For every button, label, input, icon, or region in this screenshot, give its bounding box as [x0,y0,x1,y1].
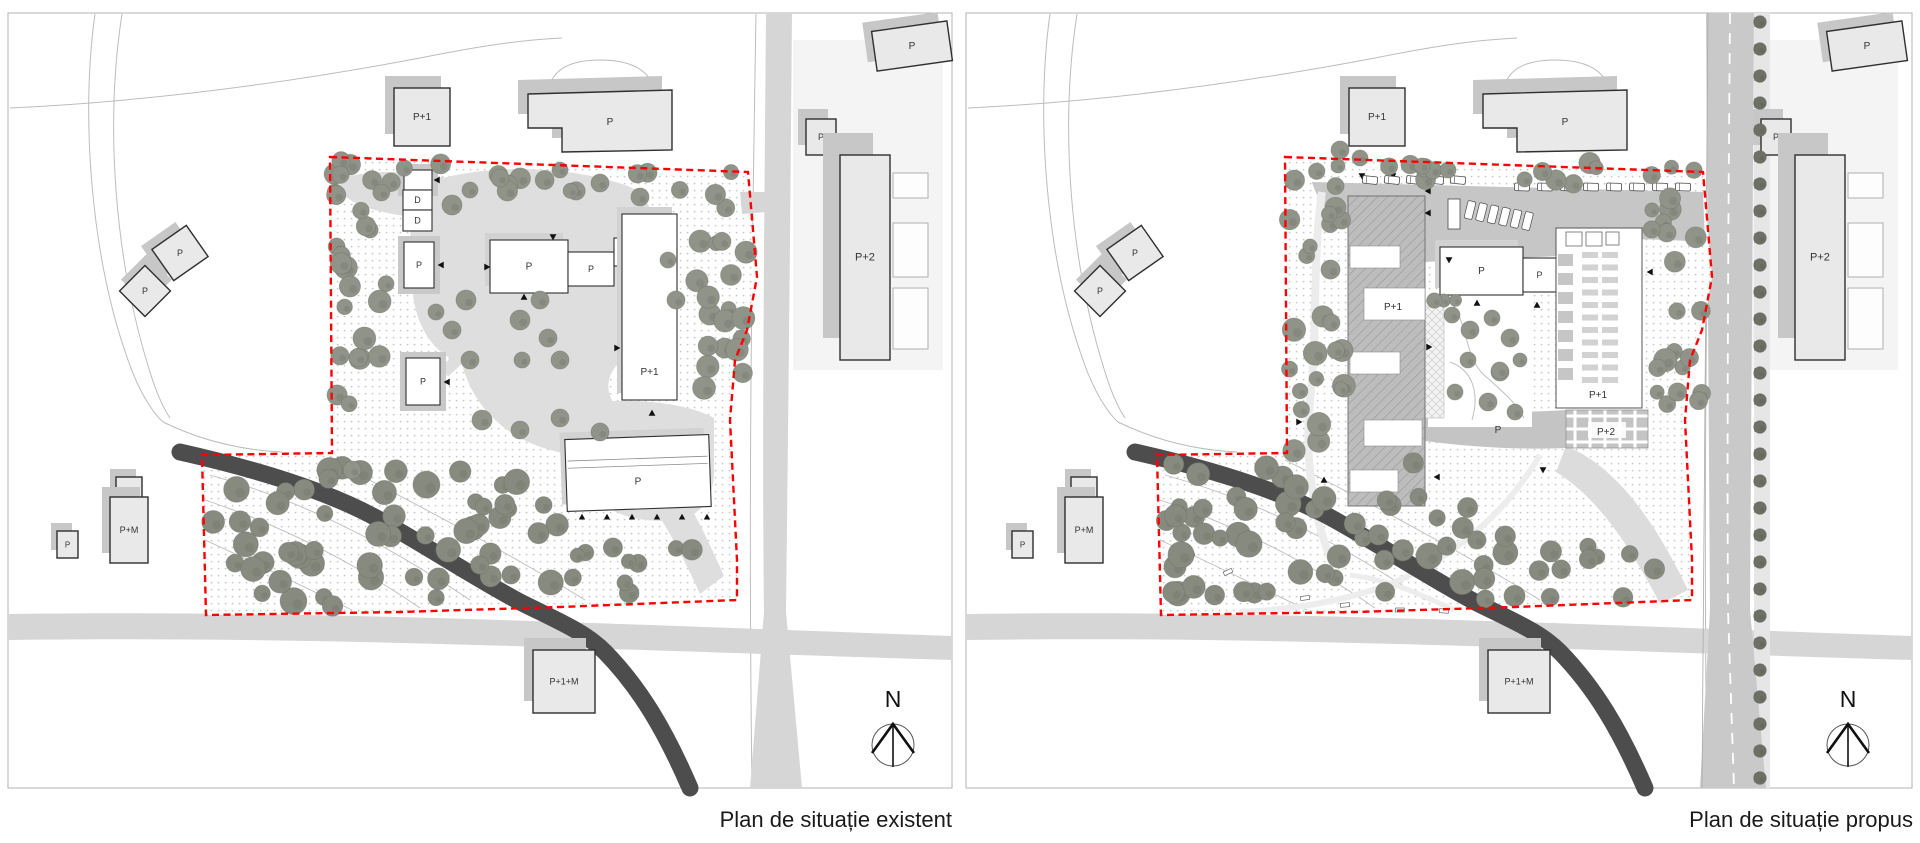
tree-shade [1695,236,1703,244]
tree [1165,505,1187,527]
deck-bar [1602,377,1618,383]
building-label: P [1495,425,1502,436]
tree-shade [1428,554,1438,564]
tree-shade [628,592,635,599]
tree [356,216,376,236]
tree-shade [1461,580,1471,590]
tree-shade [1651,209,1656,214]
tree-shade [1759,399,1764,404]
tree-shade [1402,549,1410,557]
tree-shade [324,512,330,518]
tree-shade [1386,499,1393,506]
tree-shade [1248,542,1258,552]
tree [564,569,581,586]
tree-shade [1542,170,1549,177]
tree-shade [1173,591,1181,599]
tree-shade [543,504,549,510]
tree [428,568,450,590]
tree [491,169,509,187]
tree [1501,329,1519,347]
core-box [1558,330,1573,342]
tree [504,469,530,495]
tree-shade [469,359,476,366]
tree-shade [1335,185,1341,191]
tree-shade [1759,534,1764,539]
tree [373,184,390,201]
core-box [1558,349,1573,361]
road-south [8,613,952,660]
tree [436,537,461,562]
tree-shade [544,179,551,186]
tree-shade [313,549,320,556]
tree [1476,590,1494,608]
tree-shade [451,329,458,336]
tree-shade [1175,514,1183,522]
building-label: P [1132,248,1138,258]
tree-shade [459,470,467,478]
building-label: P+1 [1384,302,1403,313]
tree-shade [1759,696,1764,701]
tree-shade [1330,268,1337,275]
tree [1458,497,1478,517]
building-label: P [65,541,70,550]
roof-box [1566,232,1582,246]
tree-shade [725,207,732,214]
tree-shade [1354,522,1362,530]
tree [241,557,266,582]
driveway-stub [740,192,766,214]
tree [1479,393,1497,411]
tree-shade [1413,462,1421,470]
context-building: P+2 [1778,133,1845,360]
tree-shade [1674,260,1682,268]
deck-bar [1602,315,1618,321]
tree-shade [572,576,578,582]
deck-bar [1602,265,1618,271]
tree [1331,159,1345,173]
site-building-group: P [398,236,440,294]
tree-shade [1549,596,1556,603]
tree-shade [1287,502,1297,512]
tree-shade [1378,534,1386,542]
bench [1300,595,1309,600]
deck-bar [1602,352,1618,358]
core-box [1558,368,1573,380]
deck-bar [1602,340,1618,346]
tree-shade [1504,535,1512,543]
tree [1429,510,1445,526]
courtyard-outline [893,173,928,198]
tree-shade [1384,559,1391,566]
tree-shade [519,319,527,327]
site-plan-canvas: P+1PPP+2PPPP+MPP+1+MDDPPPPP+1PP+1PPP+2PP… [0,0,1920,843]
tree-shade [252,567,261,576]
context-building: P [1817,12,1907,71]
tree-shade [1759,480,1764,485]
deck-bar [1582,315,1598,321]
tree [1163,581,1185,603]
tree [269,570,292,593]
tree-shade [745,251,753,259]
deck-bar [1582,290,1598,296]
tree [1645,203,1659,217]
tree [1659,188,1680,209]
tree-shade [1519,359,1524,364]
tree [1691,301,1710,320]
tree [294,479,315,500]
tree-shade [1759,615,1764,620]
tree [1288,560,1313,585]
tree [1284,475,1308,499]
tree-shade [1299,570,1308,579]
tree [511,421,529,439]
tree-shade [1759,642,1764,647]
roof-box [1606,232,1619,245]
tree [357,553,382,578]
caption-proposed: Plan de situație propus [1689,807,1913,832]
tree [1754,178,1767,191]
tree-shade [465,529,475,539]
parked-car [1362,175,1378,184]
tree [1258,583,1275,600]
tree [1168,542,1194,568]
tree-shade [383,491,392,500]
tree [472,410,492,430]
tree [1507,404,1523,420]
tree [1643,221,1660,238]
tree [1281,361,1297,377]
tree-shade [1759,723,1764,728]
tree-shade [510,574,517,581]
tree-shade [667,259,673,265]
tree-shade [369,564,379,574]
tree-shade [1293,328,1302,337]
tree [1321,206,1337,222]
tree-shade [1759,129,1764,134]
tree [384,460,407,483]
tree-shade [707,365,716,374]
tree [1754,43,1767,56]
tree-shade [639,196,646,203]
tree-shade [377,532,386,541]
tree [475,498,492,515]
tree [1579,550,1598,569]
tree [1309,163,1325,179]
tree [1689,392,1707,410]
building-label: P+2 [855,252,875,264]
building-label: P [420,377,426,387]
tree-shade [1759,156,1764,161]
tree [1276,513,1296,533]
tree [591,423,609,441]
site-building-group: P [485,233,568,293]
tree-shade [1434,300,1440,306]
tree-shade [1476,539,1483,546]
tree [1541,588,1559,606]
tree [1754,286,1767,299]
tree [1352,150,1368,166]
tree-shade [1759,372,1764,377]
building [1483,90,1627,152]
tree [531,291,549,309]
building-court [1350,352,1400,374]
tree [1754,664,1767,677]
tree [535,171,554,190]
tree-shade [1462,527,1470,535]
tree [266,492,289,515]
tree [279,542,299,562]
tree [1414,158,1430,174]
tree [1255,456,1279,480]
tree-shade [1266,466,1275,475]
tree [456,290,476,310]
tree-shade [1245,507,1254,516]
tree [319,469,338,488]
tree-shade [1331,322,1337,328]
tree-shade [1467,359,1473,365]
tree-shade [647,172,654,179]
tree-shade [1555,179,1563,187]
context-building: P [862,12,952,71]
tree [535,497,552,514]
tree [1234,497,1257,520]
tree-shade [451,204,459,212]
core-box [1558,273,1573,285]
tree-shade [1295,485,1304,494]
tree-shade [1487,401,1494,408]
tree-shade [1180,553,1190,563]
tree-shade [1550,550,1558,558]
tree-shade [311,562,321,572]
tree [349,348,368,367]
tree-shade [721,240,728,247]
tree-shade [245,543,255,553]
tree-shade [499,177,506,184]
tree-shade [1759,21,1764,26]
tree-shade [435,597,441,603]
tree-shade [378,355,386,363]
parked-truck [1448,199,1460,229]
tree [1564,175,1582,193]
tree-shade [1203,532,1211,540]
tree [697,286,719,308]
tree-shade [1314,352,1323,361]
site-building-group: P [1523,258,1556,292]
tree-shade [344,306,350,312]
tree [621,554,636,569]
building-label: P [1864,41,1871,52]
tree-shade [1469,329,1476,336]
parcel-line [114,14,170,418]
tree [353,202,370,219]
tree [551,351,569,369]
tree-shade [303,488,311,496]
tree-shade [1657,391,1662,396]
tree [1754,124,1767,137]
tree-shade [332,605,340,613]
tree [528,523,549,544]
tree [1513,353,1527,367]
tree-shade [1334,577,1340,583]
context-building: P+1+M [1479,638,1550,713]
tree-shade [628,560,634,566]
tree-shade [1759,345,1764,350]
building-label: P [1020,541,1025,550]
deck-bar [1582,265,1598,271]
tree [229,511,251,533]
tree-shade [277,502,286,511]
tree [705,184,725,204]
tree-shade [1667,403,1673,409]
deck-bar [1582,377,1598,383]
tree-shade [724,320,732,328]
tree-shade [1285,521,1292,528]
tree-shade [349,403,355,409]
tree [1754,448,1767,461]
tree-shade [1341,219,1348,226]
tree [591,174,609,192]
tree-shade [351,469,358,476]
tree [1754,313,1767,326]
tree-shade [504,503,512,511]
tree [1754,502,1767,515]
tree [502,566,520,584]
tree-shade [1447,169,1453,175]
tree [563,183,578,198]
tree-shade [1654,568,1662,576]
tree-shade [1388,165,1395,172]
deck-bar [1602,277,1618,283]
tree-shade [349,285,357,293]
context-building: P+2 [823,133,890,360]
tree [1754,97,1767,110]
tree-shade [585,551,591,557]
site-building-group: P+2 [1566,410,1648,448]
tree-shade [447,548,456,557]
tree [1754,340,1767,353]
tree-shade [556,523,565,532]
tree-shade [1538,569,1546,577]
tree-shade [489,552,497,560]
tree-shade [1425,178,1433,186]
building-label: P+1 [640,367,659,378]
tree [224,477,250,503]
tree-shade [1338,555,1347,564]
tree [1376,582,1395,601]
tree [603,538,622,557]
tree-shade [539,299,546,306]
parcel-line [10,38,562,108]
tree-shade [379,300,388,309]
tree-shade [1325,572,1332,579]
building-label: P [635,477,642,488]
tree [671,181,688,198]
deck-bar [1602,365,1618,371]
tree-shade [1491,317,1497,323]
building-label: P+2 [1810,252,1830,264]
tree-shade [465,299,473,307]
deck-bar [1582,302,1598,308]
tree-shade [742,372,749,379]
parked-car [1629,183,1644,191]
tree [1205,585,1225,605]
tree [1491,362,1508,379]
tree-shade [1759,453,1764,458]
tree [1450,569,1475,594]
tree-shade [1197,473,1206,482]
tree-shade [1295,527,1303,535]
tree [317,505,333,521]
tree-shade [1316,378,1322,384]
tree-shade [381,191,387,197]
courtyard-outline [893,288,928,349]
tree [1754,421,1767,434]
tree-shade [637,173,644,180]
tree-shade [1759,318,1764,323]
tree [1392,540,1413,561]
building-label: P [607,117,614,128]
building-label: P [177,248,183,258]
tree-shade [699,240,708,249]
parcel-line [1069,14,1125,418]
tree-shade [481,419,489,427]
tree [1754,610,1767,623]
tree-shade [404,167,410,173]
building [565,435,711,512]
tree [721,265,742,286]
tree-shade [385,283,391,289]
tree-shade [1759,291,1764,296]
site-building-group: D [403,190,432,210]
building-label: P+2 [1597,427,1616,438]
tree-shade [328,478,335,485]
tree [713,232,731,250]
tree [1368,525,1388,545]
tree [726,338,749,361]
tree [1193,499,1212,518]
tree [1438,537,1456,555]
building-label: P [142,286,148,296]
tree-shade [1560,568,1567,575]
parked-car-body [1675,183,1690,191]
tree-shade [730,274,738,282]
tree [1460,352,1476,368]
courtyard-outline [1848,173,1883,198]
tree [341,396,357,412]
tree-shade [425,483,435,493]
tree-shade [1524,178,1530,184]
tree-shade [1509,337,1516,344]
tree [697,355,720,378]
tree-shade [279,580,288,589]
tree-shade [696,279,704,287]
tree [1327,178,1344,195]
tree-shade [1588,558,1595,565]
tree-shade [340,262,348,270]
tree-shade [707,296,716,305]
tree-shade [1289,218,1297,226]
site-building-group: P [400,352,446,411]
tree [1529,561,1549,581]
tree [1293,401,1309,417]
tree-shade [1214,594,1222,602]
tree [1664,251,1685,272]
north-label: N [885,686,902,712]
tree-shade [538,532,546,540]
building-label: P+M [1075,525,1094,535]
tree-shade [1759,669,1764,674]
tree-shade [1454,391,1460,397]
